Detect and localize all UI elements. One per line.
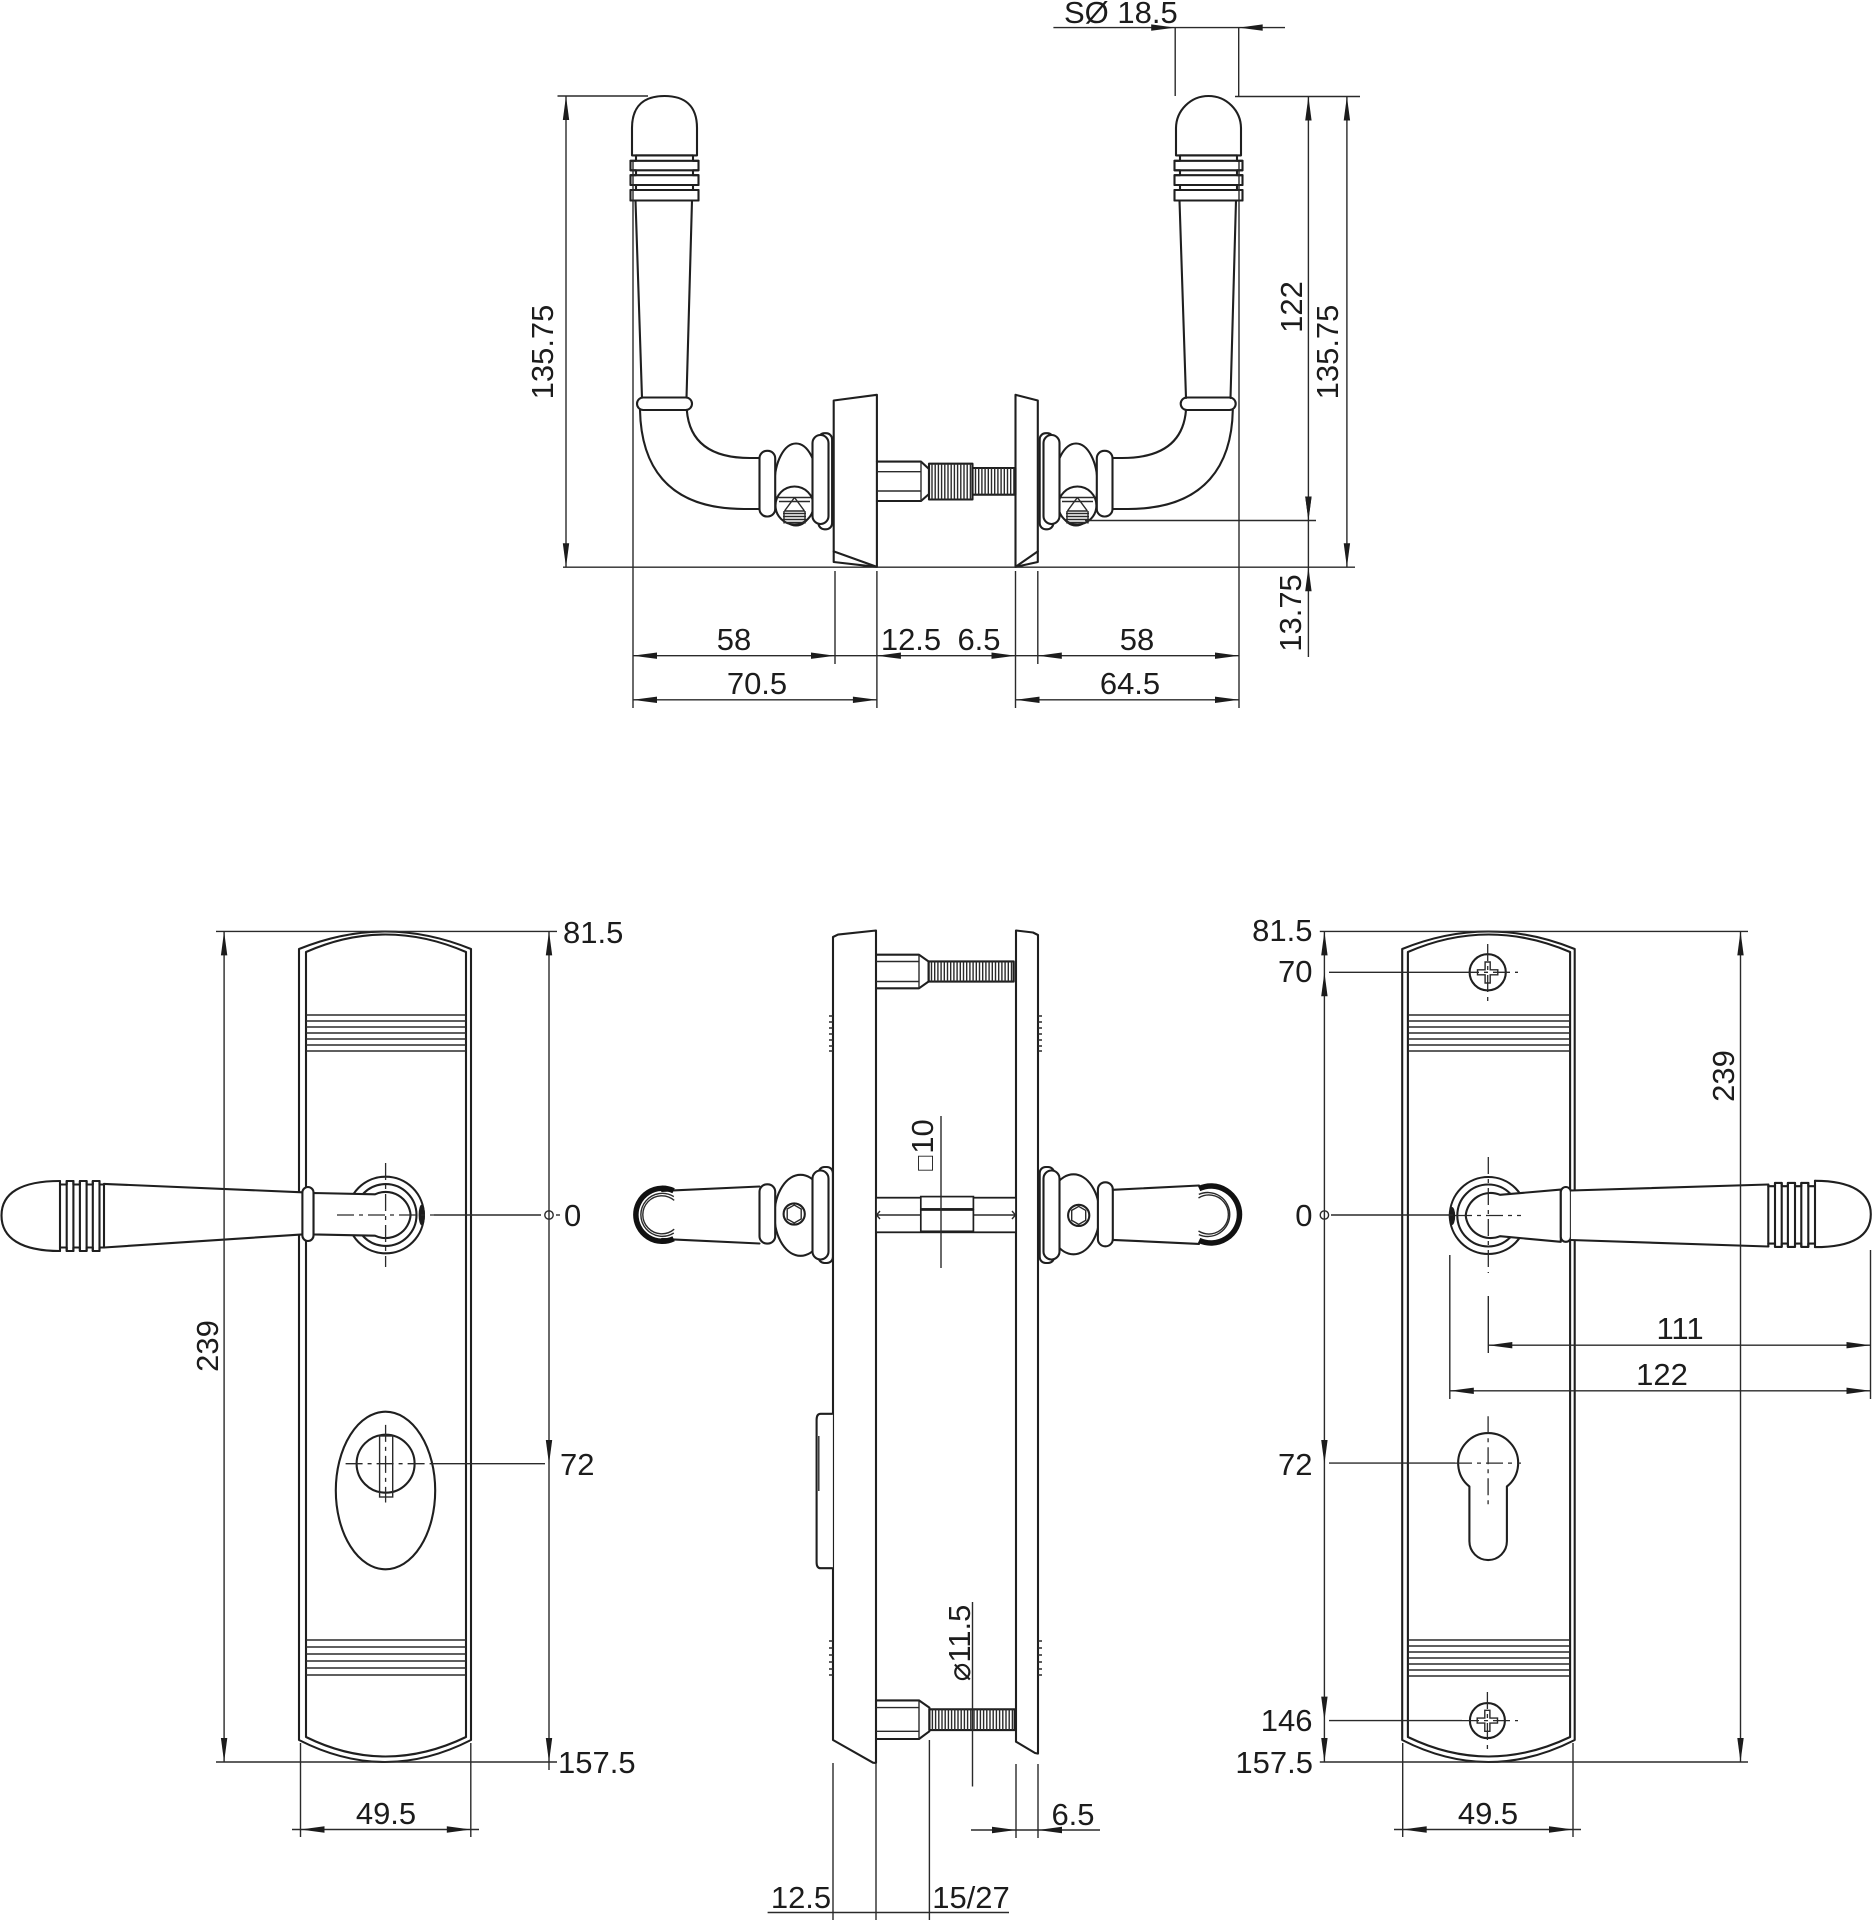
svg-text:13.75: 13.75 — [1273, 574, 1308, 652]
svg-text:58: 58 — [1120, 622, 1154, 657]
svg-text:111: 111 — [1656, 1311, 1703, 1346]
svg-text:157.5: 157.5 — [1235, 1745, 1313, 1780]
svg-text:135.75: 135.75 — [1310, 305, 1345, 400]
svg-text:135.75: 135.75 — [525, 305, 560, 400]
svg-text:0: 0 — [1295, 1198, 1312, 1233]
svg-text:122: 122 — [1636, 1357, 1688, 1392]
svg-text:122: 122 — [1274, 281, 1309, 333]
svg-text:6.5: 6.5 — [1051, 1797, 1094, 1832]
svg-text:239: 239 — [190, 1320, 225, 1372]
svg-text:SØ 18.5: SØ 18.5 — [1064, 0, 1178, 30]
svg-text:⌀11.5: ⌀11.5 — [942, 1605, 977, 1682]
svg-text:157.5: 157.5 — [558, 1745, 636, 1780]
svg-text:□10: □10 — [905, 1119, 940, 1171]
svg-text:70: 70 — [1278, 954, 1312, 989]
svg-text:6.5: 6.5 — [957, 622, 1000, 657]
svg-text:72: 72 — [560, 1447, 594, 1482]
svg-text:58: 58 — [717, 622, 751, 657]
svg-text:146: 146 — [1261, 1703, 1313, 1738]
svg-text:12.5: 12.5 — [881, 622, 941, 657]
svg-text:239: 239 — [1706, 1050, 1741, 1102]
svg-text:64.5: 64.5 — [1100, 666, 1160, 701]
svg-text:81.5: 81.5 — [1252, 913, 1312, 948]
svg-text:12.5: 12.5 — [771, 1880, 831, 1915]
svg-text:0: 0 — [564, 1198, 581, 1233]
svg-text:49.5: 49.5 — [356, 1796, 416, 1831]
svg-text:49.5: 49.5 — [1458, 1796, 1518, 1831]
svg-text:70.5: 70.5 — [727, 666, 787, 701]
svg-text:15/27: 15/27 — [932, 1880, 1010, 1915]
svg-text:81.5: 81.5 — [563, 915, 623, 950]
svg-text:72: 72 — [1278, 1447, 1312, 1482]
